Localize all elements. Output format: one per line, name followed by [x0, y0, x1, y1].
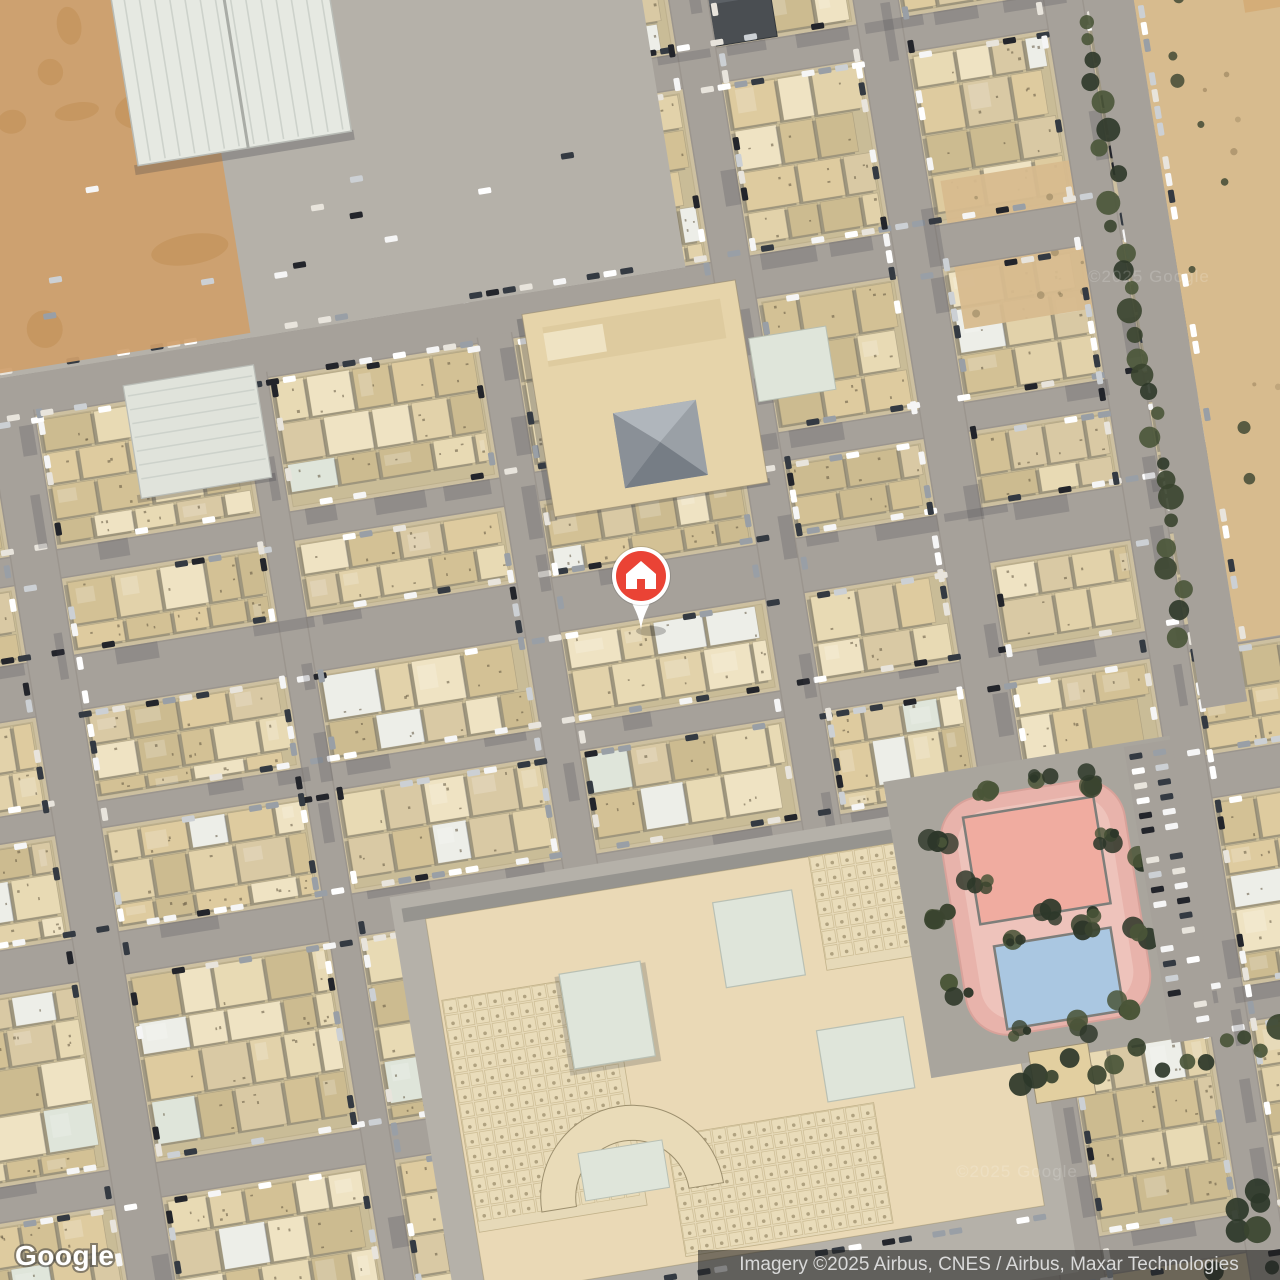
attribution-text: Imagery ©2025 Airbus, CNES / Airbus, Max…	[739, 1254, 1238, 1275]
pin-shadow	[636, 626, 666, 636]
location-pin[interactable]	[603, 544, 679, 636]
satellite-imagery[interactable]: ©2025 Google ©2025 Google	[0, 0, 1280, 1280]
satellite-scene	[0, 0, 1280, 1280]
google-watermark: ©2025 Google	[1088, 267, 1210, 286]
google-watermark: ©2025 Google	[956, 1162, 1078, 1181]
map-viewport[interactable]: ©2025 Google ©2025 Google Google Imagery…	[0, 0, 1280, 1280]
attribution-bar: Imagery ©2025 Airbus, CNES / Airbus, Max…	[698, 1250, 1280, 1280]
google-logo[interactable]: Google	[13, 1236, 133, 1274]
google-logo-text: Google	[15, 1240, 114, 1271]
